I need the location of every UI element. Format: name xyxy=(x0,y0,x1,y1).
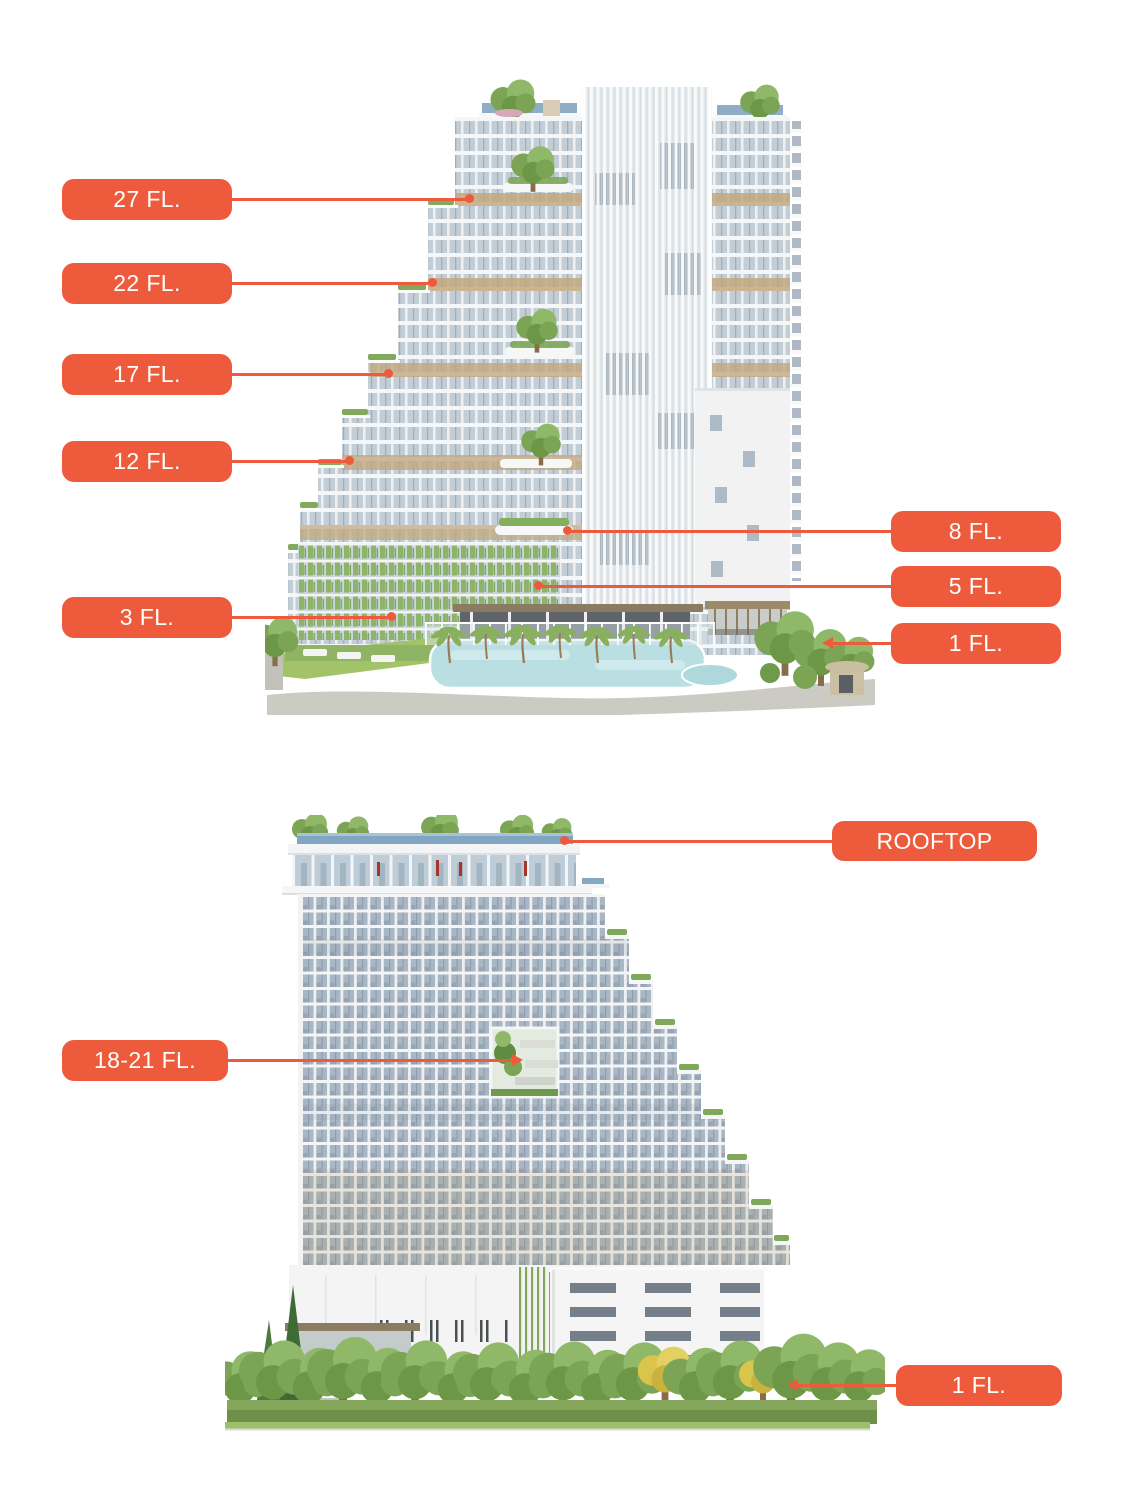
white-wall-a xyxy=(695,388,790,602)
lobby-canopy xyxy=(453,604,703,612)
floor-label-5fl: 5 FL. xyxy=(891,566,1061,607)
leader-3fl xyxy=(232,616,392,619)
balcony-stack xyxy=(790,121,802,581)
water-feature xyxy=(682,664,738,686)
floor-callout-infographic: 27 FL. 22 FL. 17 FL. 12 FL. 3 FL. 8 FL. … xyxy=(0,0,1125,1485)
leader-dot-5fl xyxy=(534,581,543,590)
leader-dot-22fl xyxy=(428,278,437,287)
floor-label-18-21fl: 18-21 FL. xyxy=(62,1040,228,1081)
leader-dot-3fl xyxy=(387,612,396,621)
floor-label-22fl: 22 FL. xyxy=(62,263,232,304)
floor-label-27fl: 27 FL. xyxy=(62,179,232,220)
leader-1fl-rear xyxy=(798,1384,896,1387)
leader-arrow-18-21fl xyxy=(512,1054,523,1066)
leader-17fl xyxy=(232,373,389,376)
leader-8fl xyxy=(568,530,891,533)
green-louvre-strip xyxy=(518,1267,550,1362)
floor-label-3fl: 3 FL. xyxy=(62,597,232,638)
leader-dot-12fl xyxy=(345,456,354,465)
leader-arrow-1fl-rear xyxy=(787,1379,798,1391)
courtyard-garden xyxy=(491,1028,558,1096)
leader-rooftop xyxy=(565,840,832,843)
floor-label-rooftop: ROOFTOP xyxy=(832,821,1037,861)
rooftop-pavilion xyxy=(292,855,576,888)
entrance-canopy xyxy=(285,1323,420,1331)
leader-1fl-front xyxy=(833,642,891,645)
floor-label-1fl-front: 1 FL. xyxy=(891,623,1061,664)
building-elevation-rear xyxy=(225,815,885,1440)
leader-27fl xyxy=(232,198,470,201)
floor-label-1fl-rear: 1 FL. xyxy=(896,1365,1062,1406)
leader-dot-8fl xyxy=(563,526,572,535)
lattice-screen-tower xyxy=(582,87,712,607)
floor-label-12fl: 12 FL. xyxy=(62,441,232,482)
leader-arrow-1fl-front xyxy=(822,637,833,649)
rooftop-deck-b xyxy=(282,815,609,895)
floor-label-17fl: 17 FL. xyxy=(62,354,232,395)
leader-dot-27fl xyxy=(465,194,474,203)
tower-body-a xyxy=(288,87,802,655)
leader-5fl xyxy=(539,585,891,588)
tower-body-b xyxy=(298,894,800,1265)
leader-18-21fl xyxy=(228,1059,512,1062)
leader-12fl xyxy=(232,460,350,463)
leader-dot-17fl xyxy=(384,369,393,378)
leader-dot-rooftop xyxy=(560,836,569,845)
pavilion-roof xyxy=(705,601,790,609)
floor-label-8fl: 8 FL. xyxy=(891,511,1061,552)
leader-22fl xyxy=(232,282,433,285)
